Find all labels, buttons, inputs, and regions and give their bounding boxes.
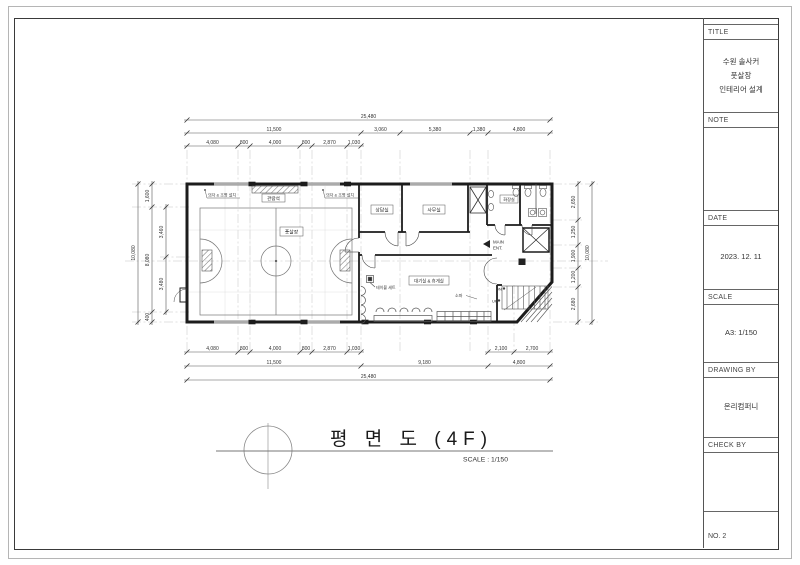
bleacher-label: 관람석 — [267, 195, 280, 202]
sofa-set — [437, 312, 491, 322]
svg-text:8,080: 8,080 — [145, 254, 151, 267]
futsal-court: 관람석 풋살장 의자 & 조명 설치 의자 & 조명 설치 — [189, 186, 358, 320]
titleblock-checkby-header: CHECK BY — [704, 437, 778, 453]
project-title-line2: 풋살장 — [719, 69, 762, 83]
svg-text:2,870: 2,870 — [323, 140, 336, 146]
svg-text:1,030: 1,030 — [348, 140, 361, 146]
svg-text:4,000: 4,000 — [269, 346, 282, 352]
project-title-line3: 인테리어 설계 — [719, 83, 762, 97]
svg-text:1,380: 1,380 — [473, 127, 486, 133]
consult-label: 상담실 — [375, 207, 388, 214]
centre-spot — [275, 260, 277, 262]
drawingby-header-label: DRAWING BY — [708, 367, 756, 374]
waiting-label: 대기실 & 휴게실 — [414, 278, 444, 285]
svg-text:800: 800 — [302, 140, 311, 146]
checkby-header-label: CHECK BY — [708, 442, 746, 449]
titleblock-scale-value: A3: 1/150 — [704, 305, 778, 362]
date-header-label: DATE — [708, 215, 727, 222]
svg-text:1,900: 1,900 — [571, 250, 577, 263]
main-ent-line1: MAIN — [493, 240, 504, 245]
svg-text:4,080: 4,080 — [206, 140, 219, 146]
dim-top-total: 25,480 — [361, 114, 377, 120]
titleblock-drawingby-value: 온리컴퍼니 — [704, 378, 778, 437]
svg-text:3,460: 3,460 — [159, 226, 165, 239]
main-entrance-marker: MAIN ENT. — [483, 240, 504, 251]
dim-bottom-total: 25,480 — [361, 374, 377, 380]
stairs-up-label: UP — [492, 299, 498, 304]
project-title-line1: 수원 솔사커 — [719, 55, 762, 69]
titleblock-title-value: 수원 솔사커 풋살장 인테리어 설계 — [704, 40, 778, 112]
drawing-sheet: 25,480 11,500 3,060 5,380 1,380 4,800 4,… — [0, 0, 800, 565]
right-install-note: 의자 & 조명 설치 — [326, 192, 354, 198]
svg-text:3,480: 3,480 — [159, 278, 165, 291]
drawing-title-block: 평 면 도 (4F) SCALE : 1/150 — [216, 423, 553, 489]
office-label: 사무실 — [427, 207, 440, 214]
titleblock-note-value — [704, 128, 778, 210]
window-bands — [214, 183, 452, 323]
svg-text:4,000: 4,000 — [269, 140, 282, 146]
column-marker — [519, 259, 526, 266]
note-header-label: NOTE — [708, 117, 729, 124]
bleacher-strip — [252, 186, 298, 193]
svg-text:2,650: 2,650 — [571, 196, 577, 209]
svg-text:11,500: 11,500 — [267, 360, 282, 366]
svg-text:3,060: 3,060 — [374, 127, 387, 133]
svg-text:1,250: 1,250 — [571, 226, 577, 239]
svg-text:800: 800 — [240, 140, 249, 146]
svg-text:5,380: 5,380 — [429, 127, 442, 133]
toilet-label: 화장실 — [503, 196, 515, 203]
floor-plan-drawing: 25,480 11,500 3,060 5,380 1,380 4,800 4,… — [0, 0, 700, 565]
titleblock-scale-header: SCALE — [704, 289, 778, 305]
drawing-title-scale: SCALE : 1/150 — [463, 457, 508, 464]
left-goal — [202, 250, 212, 271]
doors — [174, 225, 532, 302]
date-value: 2023. 12. 11 — [720, 250, 761, 264]
svg-text:2,700: 2,700 — [526, 346, 539, 352]
titleblock-drawingby-header: DRAWING BY — [704, 362, 778, 378]
sheet-number: NO. 2 — [708, 533, 726, 540]
title-header-label: TITLE — [708, 29, 729, 36]
svg-text:11,500: 11,500 — [267, 127, 282, 133]
svg-text:2,680: 2,680 — [571, 298, 577, 311]
titleblock-checkby-value — [704, 453, 778, 511]
svg-text:800: 800 — [302, 346, 311, 352]
titleblock-date-value: 2023. 12. 11 — [704, 226, 778, 289]
svg-text:2,870: 2,870 — [323, 346, 336, 352]
stairs-dn-label: DN — [496, 287, 502, 292]
svg-text:400: 400 — [145, 313, 151, 322]
titleblock-title-header: TITLE — [704, 24, 778, 40]
sofa-note: 소파 — [455, 292, 463, 298]
right-goal — [340, 250, 350, 271]
wall-columns — [249, 182, 478, 325]
titleblock-note-header: NOTE — [704, 112, 778, 128]
svg-text:4,800: 4,800 — [513, 360, 526, 366]
scale-value: A3: 1/150 — [725, 326, 757, 340]
svg-text:1,600: 1,600 — [145, 190, 151, 203]
svg-text:4,080: 4,080 — [206, 346, 219, 352]
svg-text:4,800: 4,800 — [513, 127, 526, 133]
drawing-title-text: 평 면 도 (4F) — [330, 428, 493, 450]
interior-walls — [359, 184, 552, 322]
svg-text:1,200: 1,200 — [571, 271, 577, 284]
svg-text:2,100: 2,100 — [495, 346, 508, 352]
svg-text:1,030: 1,030 — [348, 346, 361, 352]
svg-text:800: 800 — [240, 346, 249, 352]
scale-header-label: SCALE — [708, 294, 732, 301]
drawingby-value: 온리컴퍼니 — [724, 400, 759, 414]
titleblock-number-row: NO. 2 — [704, 511, 778, 546]
futsal-label: 풋살장 — [285, 229, 299, 236]
title-block: TITLE 수원 솔사커 풋살장 인테리어 설계 NOTE DATE 2023.… — [703, 18, 777, 548]
dim-right-total: 10,080 — [585, 245, 591, 261]
svg-text:9,180: 9,180 — [418, 360, 431, 366]
elevator-shaft — [523, 228, 549, 252]
dim-left-total: 10,080 — [131, 245, 137, 261]
table-set-note: 테이블 세트 — [376, 284, 396, 290]
left-install-note: 의자 & 조명 설치 — [208, 192, 236, 198]
sofa-leader — [466, 296, 477, 300]
main-ent-line2: ENT. — [493, 246, 503, 251]
duct-shaft — [470, 187, 486, 213]
titleblock-date-header: DATE — [704, 210, 778, 226]
